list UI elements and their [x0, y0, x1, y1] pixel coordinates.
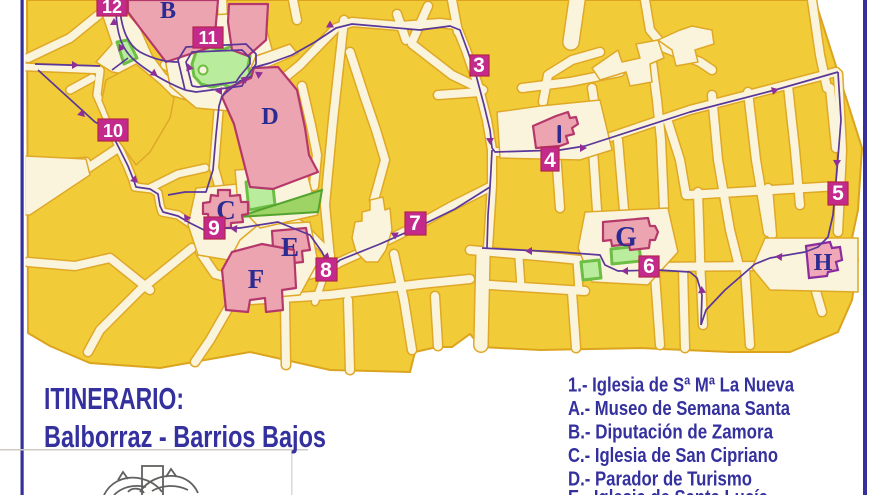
svg-text:1.- Iglesia de Sª Mª La Nueva: 1.- Iglesia de Sª Mª La Nueva [568, 374, 794, 397]
svg-text:8: 8 [320, 259, 332, 282]
svg-text:E.- Iglesia de Santa Lucía: E.- Iglesia de Santa Lucía [568, 486, 768, 495]
svg-text:3: 3 [473, 54, 485, 77]
svg-text:B.- Diputación de Zamora: B.- Diputación de Zamora [568, 421, 773, 444]
svg-text:11: 11 [198, 28, 217, 48]
svg-text:A.- Museo de Semana Santa: A.- Museo de Semana Santa [568, 397, 790, 420]
svg-text:F: F [248, 264, 265, 294]
svg-text:ITINERARIO:: ITINERARIO: [44, 381, 184, 416]
svg-text:Balborraz - Barrios Bajos: Balborraz - Barrios Bajos [44, 419, 326, 454]
svg-text:B: B [160, 0, 176, 24]
svg-text:5: 5 [832, 182, 844, 205]
svg-text:C.- Iglesia de San Cipriano: C.- Iglesia de San Cipriano [568, 444, 778, 467]
svg-text:G: G [615, 222, 637, 253]
svg-text:E: E [281, 232, 299, 262]
svg-text:12: 12 [102, 0, 122, 17]
svg-text:10: 10 [103, 121, 123, 141]
svg-text:9: 9 [208, 217, 220, 240]
svg-text:4: 4 [544, 149, 556, 172]
svg-text:6: 6 [643, 255, 655, 278]
svg-text:D: D [261, 104, 278, 130]
svg-text:H: H [814, 250, 833, 276]
svg-text:7: 7 [409, 212, 421, 235]
